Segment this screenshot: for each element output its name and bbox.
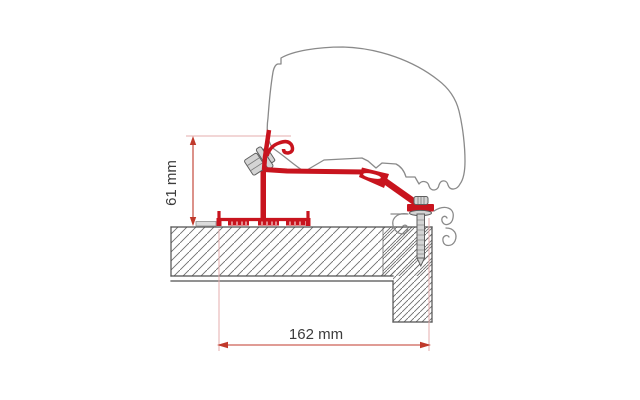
foot-right-curl bbox=[434, 207, 453, 224]
screw-shaft bbox=[417, 214, 425, 258]
roof-wall-cross-section bbox=[171, 227, 432, 322]
horizontal-bracket-bar bbox=[264, 170, 364, 173]
base-rail-serrated-pads bbox=[228, 221, 305, 226]
base-rail-right-foot bbox=[306, 218, 311, 226]
height-arrow-down bbox=[190, 217, 196, 226]
height-dimension-label: 61 mm bbox=[163, 160, 180, 206]
installation-diagram: 61 mm 162 mm bbox=[0, 0, 640, 400]
diagram-canvas: 61 mm 162 mm bbox=[0, 0, 640, 400]
width-dimension-label: 162 mm bbox=[289, 326, 343, 343]
foot-lower-hook bbox=[443, 228, 456, 246]
height-arrow-up bbox=[190, 136, 196, 145]
base-rail-left-foot bbox=[217, 218, 222, 226]
roof-pad bbox=[196, 222, 216, 227]
